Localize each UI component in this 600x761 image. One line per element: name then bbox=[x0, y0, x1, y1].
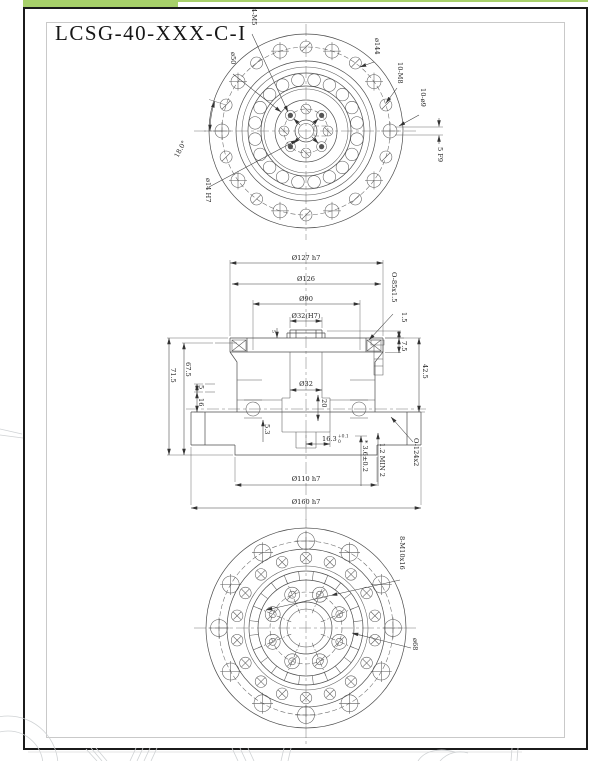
progress-bar-track bbox=[178, 0, 588, 2]
drawing-title: LCSG-40-XXX-C-I bbox=[55, 21, 247, 46]
drawing-inner-frame bbox=[46, 22, 565, 738]
progress-bar-filled bbox=[23, 0, 178, 7]
drawing-viewer: LCSG-40-XXX-C-I bbox=[0, 0, 600, 761]
drawing-sheet: LCSG-40-XXX-C-I bbox=[23, 7, 588, 750]
